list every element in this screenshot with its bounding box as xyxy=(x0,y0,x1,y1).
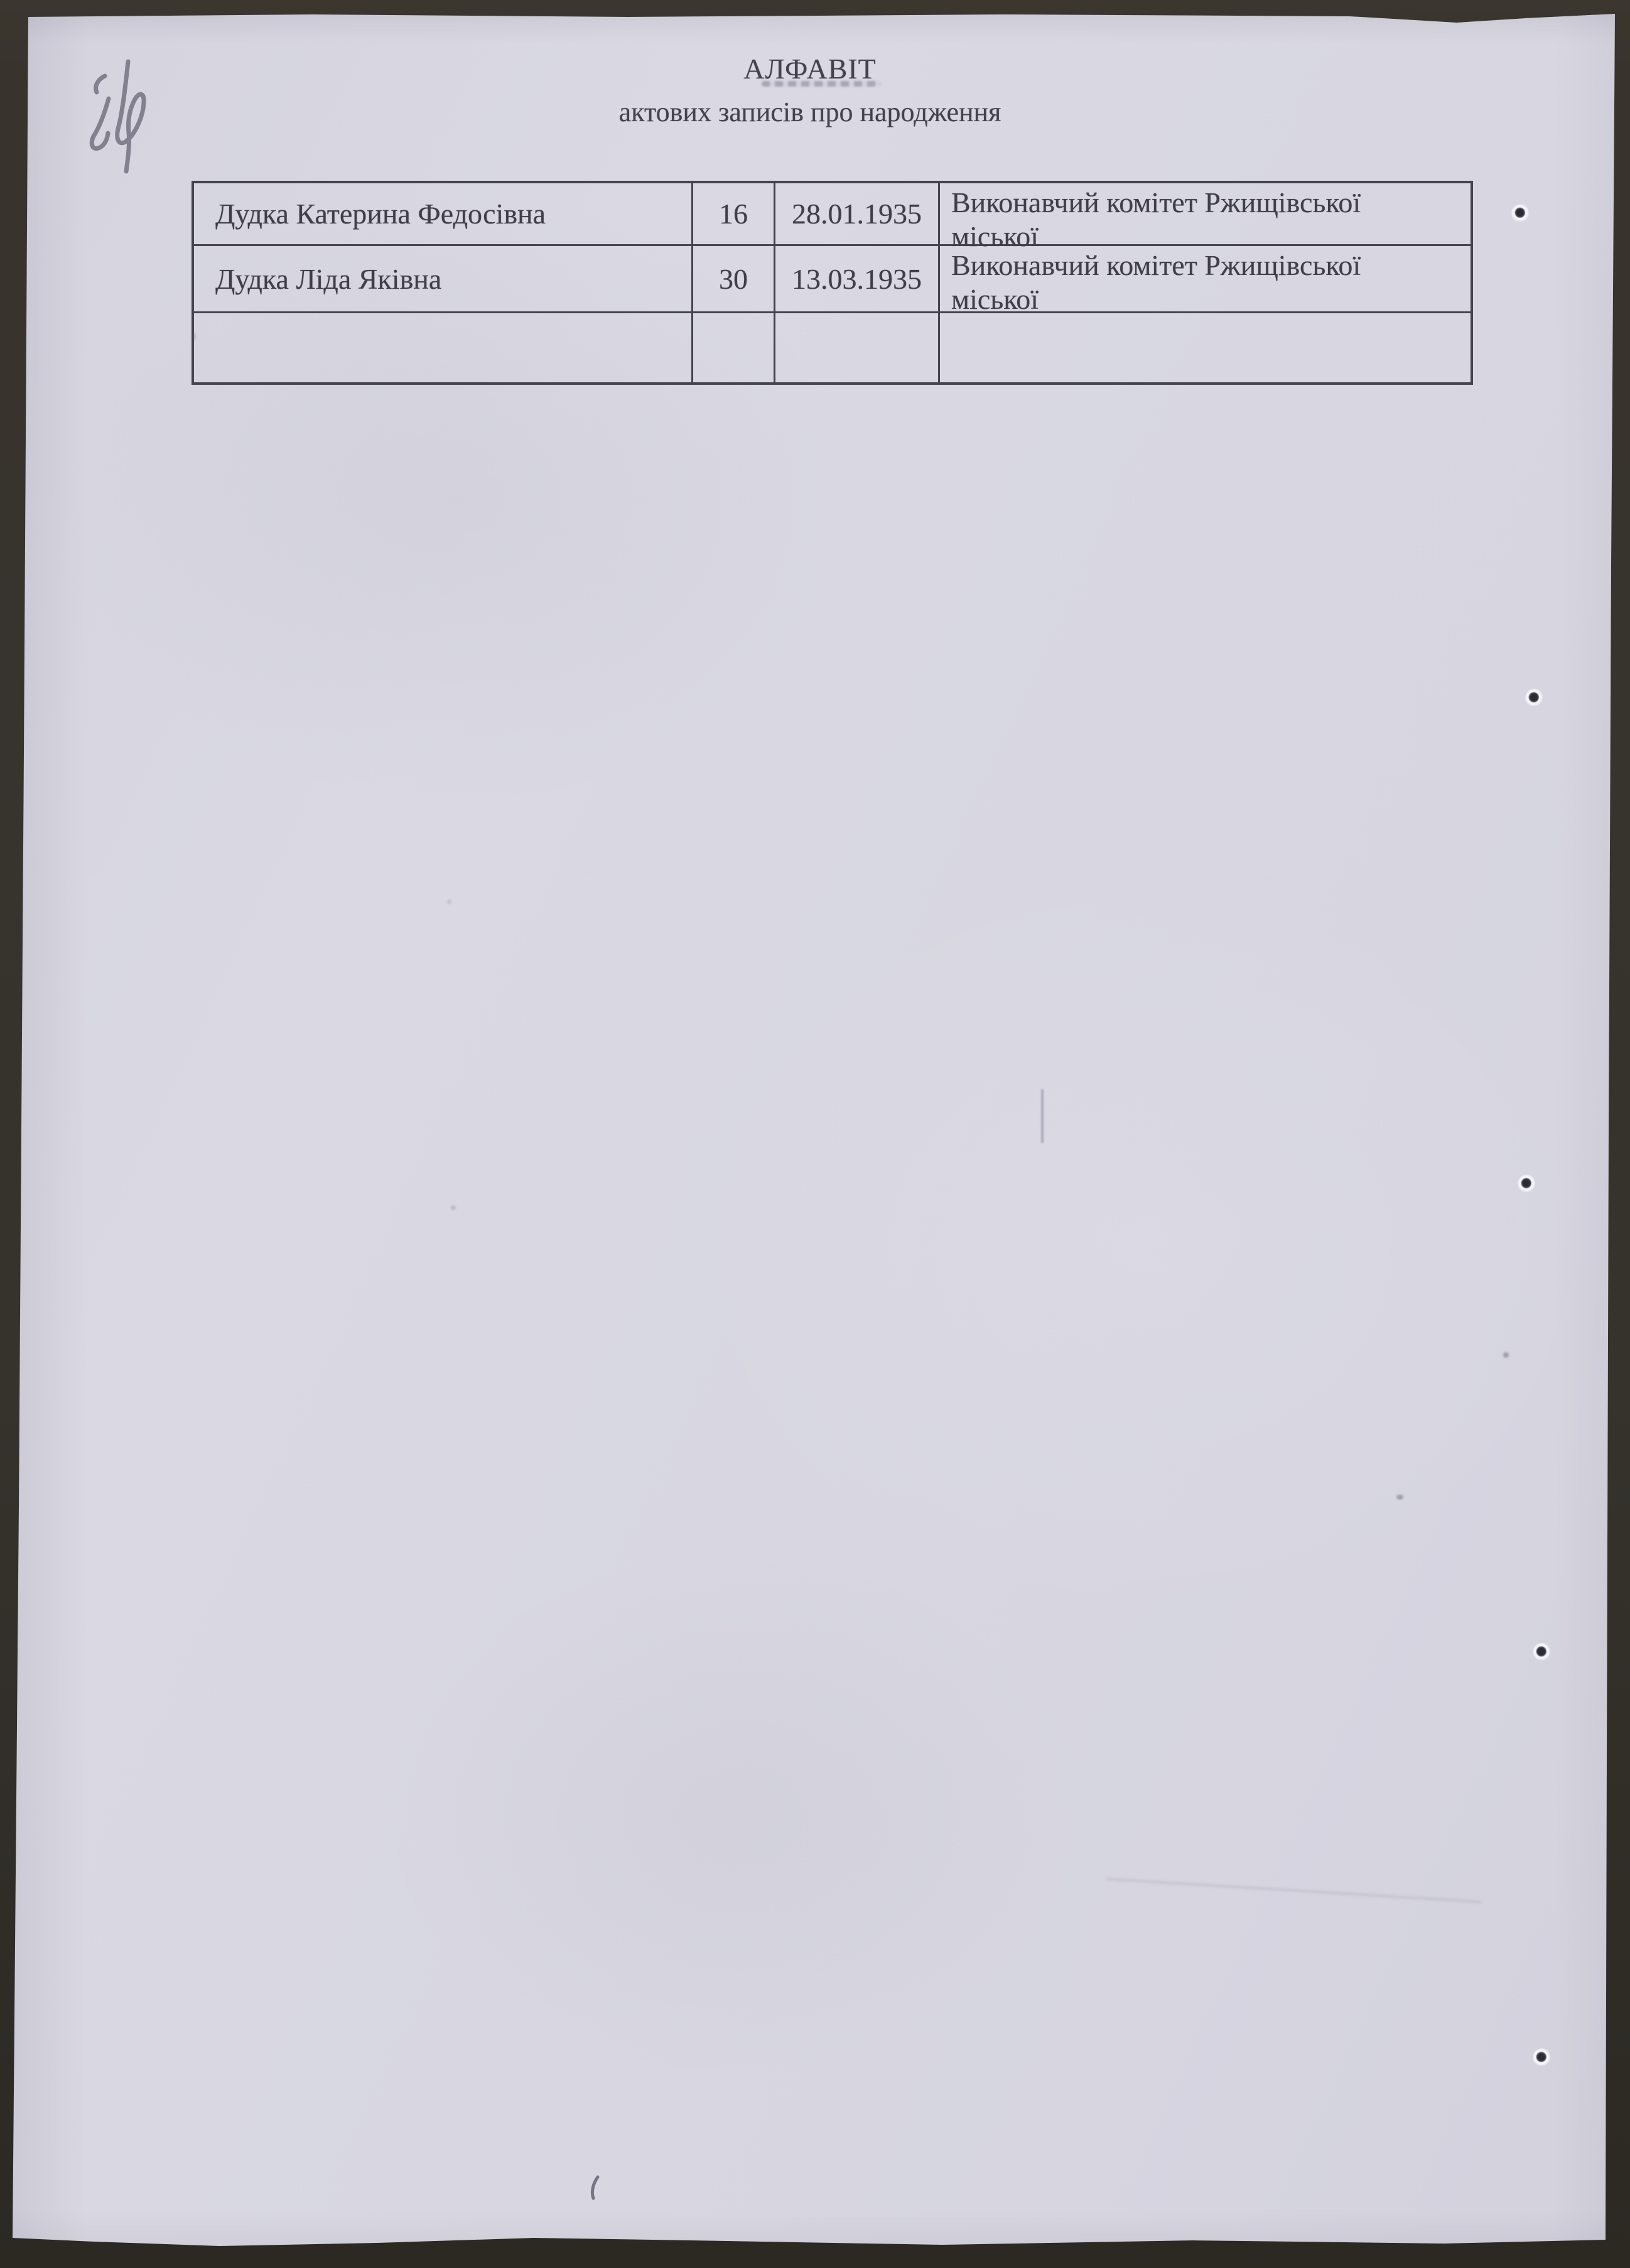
record-date: 13.03.1935 xyxy=(792,262,922,296)
record-name: Дудка Ліда Яківна xyxy=(215,262,441,296)
page-subtitle: актових записів про народження xyxy=(402,97,1218,127)
record-number: 16 xyxy=(719,197,748,230)
handwritten-page-number xyxy=(92,62,144,171)
dust-speck xyxy=(1503,1352,1509,1358)
punch-hole xyxy=(1533,2048,1552,2067)
record-office: Виконавчий комітет Ржищівської міської xyxy=(951,249,1435,316)
record-date: 28.01.1935 xyxy=(792,197,922,230)
cell-record-number: 30 xyxy=(693,246,775,313)
pen-mark xyxy=(592,2177,598,2198)
punch-hole xyxy=(1511,204,1530,223)
punch-hole xyxy=(1533,1643,1552,1662)
punch-hole xyxy=(1518,1174,1536,1193)
paper-fiber xyxy=(1041,1089,1044,1143)
cell-date: 28.01.1935 xyxy=(775,183,940,246)
cell-date xyxy=(775,313,940,382)
cell-date: 13.03.1935 xyxy=(775,246,940,313)
cell-name: Дудка Катерина Федосівна xyxy=(194,183,693,246)
record-name: Дудка Катерина Федосівна xyxy=(215,197,546,230)
cell-office: Виконавчий комітет Ржищівської міської xyxy=(940,246,1471,313)
page-header: АЛФАВІТ актових записів про народження xyxy=(402,53,1218,127)
cell-name xyxy=(194,313,693,382)
cell-record-number: 16 xyxy=(693,183,775,246)
dust-speck xyxy=(447,900,451,904)
erased-strikethrough-text xyxy=(762,81,881,87)
punch-hole xyxy=(1525,689,1544,707)
cell-office xyxy=(940,313,1471,382)
birth-records-table: Дудка Катерина Федосівна 16 28.01.1935 В… xyxy=(192,181,1473,385)
dust-speck xyxy=(1396,1495,1403,1500)
record-number: 30 xyxy=(719,262,748,296)
dust-speck xyxy=(192,333,196,340)
cell-office: Виконавчий комітет Ржищівської міської xyxy=(940,183,1471,246)
paper-crease xyxy=(1105,1878,1481,1903)
record-office: Виконавчий комітет Ржищівської міської xyxy=(951,186,1435,254)
cell-name: Дудка Ліда Яківна xyxy=(194,246,693,313)
dust-speck xyxy=(451,1205,456,1210)
cell-record-number xyxy=(693,313,775,382)
scanned-page: АЛФАВІТ актових записів про народження Д… xyxy=(0,0,1630,2268)
